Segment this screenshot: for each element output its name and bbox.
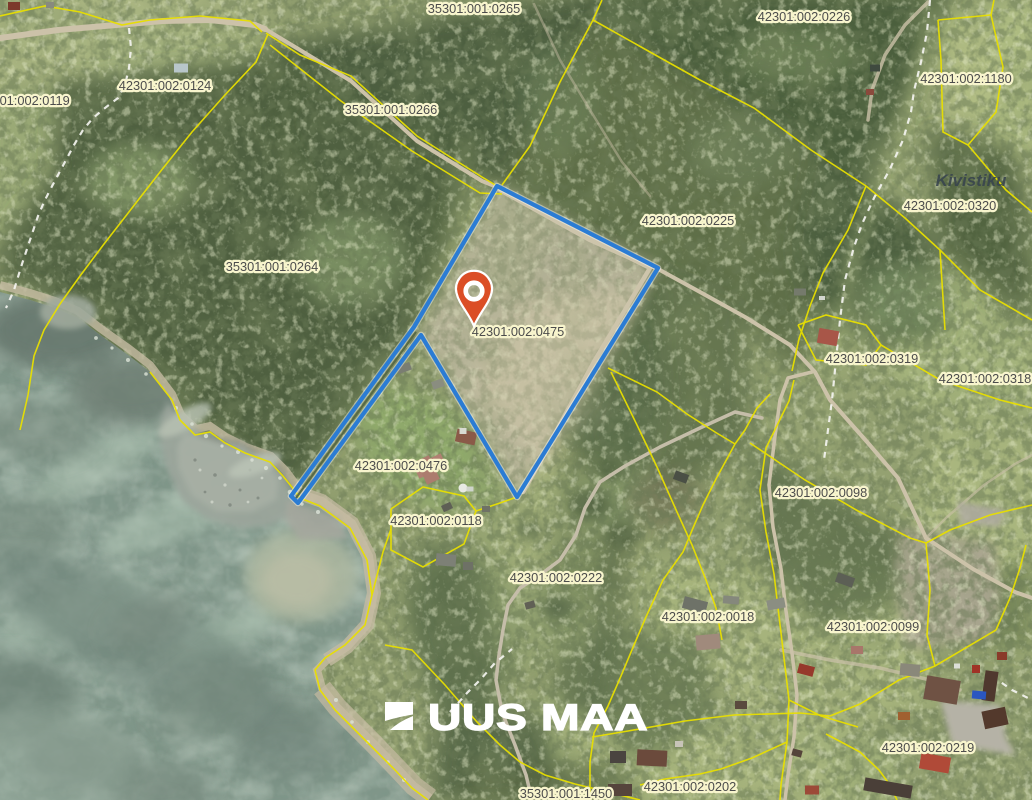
svg-text:35301:001:0265: 35301:001:0265 xyxy=(428,1,521,16)
svg-text:42301:002:1180: 42301:002:1180 xyxy=(920,71,1012,86)
svg-text:42301:002:0118: 42301:002:0118 xyxy=(390,513,482,528)
svg-text:35301:001:0266: 35301:001:0266 xyxy=(345,102,438,117)
svg-text:42301:002:0225: 42301:002:0225 xyxy=(642,213,735,228)
svg-text:42301:002:0319: 42301:002:0319 xyxy=(826,351,919,366)
svg-text:42301:002:0475: 42301:002:0475 xyxy=(472,324,565,339)
svg-text:42301:002:0202: 42301:002:0202 xyxy=(644,779,737,794)
svg-text:Kivistiku: Kivistiku xyxy=(936,171,1007,190)
svg-text:42301:002:0219: 42301:002:0219 xyxy=(882,740,975,755)
svg-text:42301:002:0124: 42301:002:0124 xyxy=(119,78,212,93)
svg-text:42301:002:0018: 42301:002:0018 xyxy=(662,609,755,624)
svg-text:42301:002:0222: 42301:002:0222 xyxy=(510,570,603,585)
svg-text:42301:002:0098: 42301:002:0098 xyxy=(775,485,868,500)
svg-text:35301:001:0264: 35301:001:0264 xyxy=(226,259,319,274)
svg-text:42301:002:0320: 42301:002:0320 xyxy=(904,198,997,213)
svg-text:42301:002:0099: 42301:002:0099 xyxy=(827,619,920,634)
svg-text:42301:002:0318: 42301:002:0318 xyxy=(939,371,1032,386)
svg-text:UUS MAA: UUS MAA xyxy=(428,696,648,738)
svg-text:42301:002:0119: 42301:002:0119 xyxy=(0,93,70,108)
svg-text:35301:001:1450: 35301:001:1450 xyxy=(520,786,613,800)
svg-text:42301:002:0476: 42301:002:0476 xyxy=(355,458,448,473)
svg-text:42301:002:0226: 42301:002:0226 xyxy=(758,9,851,24)
